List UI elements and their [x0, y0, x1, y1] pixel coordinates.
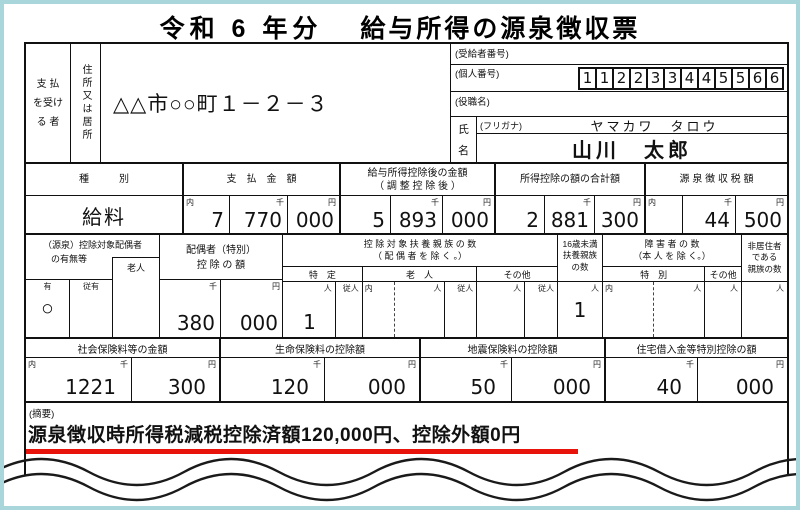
spouse-yes-cell: 有 ○ [26, 279, 69, 337]
title-era: 令和 6 年分 [160, 15, 323, 43]
disability-special-cell: 内人 [603, 282, 704, 337]
nin-marker: 人 [591, 283, 599, 294]
payment-sen: 千770 [229, 196, 287, 234]
junin-marker: 従人 [457, 283, 473, 294]
spouse-header-line1: （源泉）控除対象配偶者 [26, 239, 159, 251]
elderly-sub-cell: 従人 [444, 282, 476, 337]
furigana-row: (フリガナ) ヤマカワ タロウ [477, 117, 787, 134]
payment-en: 円000 [287, 196, 339, 234]
total-deduction-man: 2 [494, 196, 544, 234]
withholding-sen: 千44 [682, 196, 735, 234]
disability-special-label: 特 別 [603, 267, 704, 281]
dashed-divider [394, 282, 395, 337]
dependents-header: 控 除 対 象 扶 養 親 族 の 数 （ 配 偶 者 を 除 く 。） [283, 238, 557, 262]
uchi-marker: 内 [186, 197, 194, 208]
junin-marker: 従人 [538, 283, 554, 294]
spouse-deduction-en: 円000 [220, 279, 283, 337]
dependents-section: （源泉）控除対象配偶者 の有無等 老人 有 ○ 従有 配偶者（特別） 控 除 の… [26, 235, 787, 339]
nonresident-count-cell: 人 [742, 281, 787, 337]
furigana-value: ヤマカワ タロウ [522, 116, 787, 135]
en-marker: 円 [776, 359, 784, 370]
housing-sen: 千40 [604, 358, 697, 401]
income-header-row: 種 別 支 払 金 額 給与所得控除後の金額（ 調 整 控 除 後 ） 所得控除… [26, 164, 787, 196]
disability-values: 内人 人 [603, 281, 741, 337]
sen-marker: 千 [120, 359, 128, 370]
spouse-elderly-cell: 老人 [112, 257, 159, 337]
spouse-subyes-cell: 従有 [69, 279, 112, 337]
yes-marker: 有 [26, 281, 69, 292]
specific-label: 特 定 [283, 267, 362, 281]
nin-marker: 人 [433, 283, 441, 294]
name-label: 氏 名 [451, 117, 477, 162]
spouse-deduction-block: 配偶者（特別） 控 除 の 額 千380 円000 [159, 235, 282, 337]
under16-label: 16歳未満 扶養親族 の数 [558, 239, 602, 273]
spouse-deduction-header: 配偶者（特別） 控 除 の 額 [160, 243, 282, 273]
disability-subheader: 特 別 その他 [603, 266, 741, 281]
en-marker: 円 [483, 197, 491, 208]
social-en: 円300 [131, 358, 219, 401]
payer-label: 支 払 を受け る 者 [26, 44, 71, 162]
after-deduction-sen: 千893 [390, 196, 442, 234]
insurance-header-row: 社会保険料等の金額 生命保険料の控除額 地震保険料の控除額 住宅借入金等特別控除… [26, 339, 787, 358]
after-deduction-man: 5 [339, 196, 390, 234]
personal-number-row: (個人番号) 1 1 2 2 3 3 4 4 5 5 6 6 [451, 65, 787, 91]
en-marker: 円 [593, 359, 601, 370]
dep-other-label: その他 [476, 267, 557, 281]
spouse-presence-block: （源泉）控除対象配偶者 の有無等 老人 有 ○ 従有 [26, 235, 159, 337]
withholding-uchi-cell: 内 [644, 196, 682, 234]
withholding-en: 円500 [735, 196, 787, 234]
payer-label-line: 支 払 [37, 75, 60, 94]
spouse-elderly-label: 老人 [113, 258, 159, 274]
total-deduction-sen: 千881 [544, 196, 594, 234]
address-label: 住所又は居所 [71, 44, 101, 162]
disability-header: 障 害 者 の 数 （本 人 を 除 く。） [603, 238, 741, 262]
after-deduction-header: 給与所得控除後の金額（ 調 整 控 除 後 ） [339, 164, 494, 195]
name-label-char: 名 [458, 142, 469, 158]
disability-other-label: その他 [704, 267, 741, 281]
disability-block: 障 害 者 の 数 （本 人 を 除 く。） 特 別 その他 内人 人 [602, 235, 741, 337]
specific-count-cell: 人1 [283, 282, 335, 337]
name-row: 氏 名 (フリガナ) ヤマカワ タロウ 山川 太郎 [451, 117, 787, 162]
dependents-values: 人1 従人 内人 従人 人 従人 [283, 281, 557, 337]
nonresident-block: 非居住者 である 親族の数 人 [741, 235, 787, 337]
sen-marker: 千 [431, 197, 439, 208]
en-marker: 円 [328, 197, 336, 208]
identity-section: 支 払 を受け る 者 住所又は居所 △△市○○町１－２－３ (受給者番号) (… [26, 44, 787, 164]
personal-number-label: (個人番号) [451, 66, 521, 90]
sen-marker: 千 [724, 197, 732, 208]
address-value: △△市○○町１－２－３ [101, 44, 450, 162]
summary-label: (摘要) [26, 403, 787, 420]
payment-header: 支 払 金 額 [182, 164, 339, 195]
after-deduction-en: 円000 [442, 196, 494, 234]
nonresident-label: 非居住者 である 親族の数 [742, 241, 787, 275]
income-section: 種 別 支 払 金 額 給与所得控除後の金額（ 調 整 控 除 後 ） 所得控除… [26, 164, 787, 235]
personal-number-digits: 1 1 2 2 3 3 4 4 5 5 6 6 [580, 67, 787, 90]
en-marker: 円 [208, 359, 216, 370]
position-label: (役職名) [451, 92, 787, 117]
uchi-marker: 内 [28, 359, 36, 370]
life-sen: 千120 [219, 358, 324, 401]
other-count-cell: 人 [476, 282, 524, 337]
payer-label-line: る 者 [37, 113, 60, 132]
en-marker: 円 [272, 281, 280, 292]
housing-deduction-header: 住宅借入金等特別控除の額 [604, 339, 787, 357]
nin-marker: 人 [324, 283, 332, 294]
disability-other-cell: 人 [704, 282, 741, 337]
sen-marker: 千 [276, 197, 284, 208]
dashed-divider [653, 282, 654, 337]
subyes-marker: 従有 [70, 281, 112, 292]
page-title: 令和 6 年分給与所得の源泉徴収票 [4, 9, 796, 45]
personal-number-digit: 6 [765, 67, 784, 90]
en-marker: 円 [776, 197, 784, 208]
sen-marker: 千 [313, 359, 321, 370]
dep-elderly-label: 老 人 [362, 267, 477, 281]
en-marker: 円 [633, 197, 641, 208]
spouse-deduction-sen: 千380 [160, 279, 220, 337]
dependents-count-block: 控 除 対 象 扶 養 親 族 の 数 （ 配 偶 者 を 除 く 。） 特 定… [282, 235, 557, 337]
payment-man: 内7 [182, 196, 229, 234]
recipient-number-label: (受給者番号) [451, 44, 787, 65]
sen-marker: 千 [583, 197, 591, 208]
nin-marker: 人 [513, 283, 521, 294]
form-table: 支 払 を受け る 者 住所又は居所 △△市○○町１－２－３ (受給者番号) (… [24, 42, 789, 475]
total-deduction-header: 所得控除の額の合計額 [494, 164, 644, 195]
other-sub-cell: 従人 [524, 282, 557, 337]
income-value-row: 給料 内7 千770 円000 5 千893 円000 2 千881 円300 … [26, 196, 787, 234]
name-label-char: 氏 [458, 121, 469, 137]
withholding-header: 源 泉 徴 収 税 額 [644, 164, 787, 195]
nin-marker: 人 [730, 283, 738, 294]
type-value: 給料 [26, 196, 182, 234]
under16-count-cell: 人 1 [558, 281, 602, 337]
earthquake-en: 円000 [511, 358, 604, 401]
social-sen: 内千1221 [26, 358, 131, 401]
spouse-header-line2: の有無等 [26, 253, 112, 265]
earthquake-sen: 千50 [419, 358, 511, 401]
payer-label-line: を受け [33, 94, 63, 113]
withholding-slip-page: 令和 6 年分給与所得の源泉徴収票 支 払 を受け る 者 住所又は居所 △△市… [0, 0, 800, 510]
sen-marker: 千 [686, 359, 694, 370]
title-name: 給与所得の源泉徴収票 [360, 15, 640, 43]
insurance-section: 社会保険料等の金額 生命保険料の控除額 地震保険料の控除額 住宅借入金等特別控除… [26, 339, 787, 403]
specific-sub-cell: 従人 [335, 282, 362, 337]
en-marker: 円 [408, 359, 416, 370]
sen-marker: 千 [209, 281, 217, 292]
name-value: 山川 太郎 [477, 134, 787, 163]
dependents-subheader: 特 定 老 人 その他 [283, 266, 557, 281]
name-body: (フリガナ) ヤマカワ タロウ 山川 太郎 [477, 117, 787, 162]
uchi-marker: 内 [648, 197, 656, 208]
junin-marker: 従人 [343, 283, 359, 294]
summary-note: 源泉徴収時所得税減税控除済額120,000円、控除外額0円 [28, 420, 521, 447]
life-insurance-header: 生命保険料の控除額 [219, 339, 419, 357]
insurance-value-row: 内千1221 円300 千120 円000 千50 円000 千40 円000 [26, 358, 787, 401]
uchi-marker: 内 [605, 283, 613, 294]
type-header: 種 別 [26, 164, 182, 195]
furigana-label: (フリガナ) [477, 119, 522, 132]
nin-marker: 人 [693, 283, 701, 294]
sen-marker: 千 [500, 359, 508, 370]
total-deduction-en: 円300 [594, 196, 644, 234]
elderly-count-cell: 内人 [362, 282, 445, 337]
under16-block: 16歳未満 扶養親族 の数 人 1 [557, 235, 602, 337]
social-insurance-header: 社会保険料等の金額 [26, 339, 219, 357]
life-en: 円000 [324, 358, 419, 401]
nin-marker: 人 [776, 283, 784, 294]
torn-edge-waves [4, 452, 800, 510]
earthquake-insurance-header: 地震保険料の控除額 [419, 339, 604, 357]
recipient-block: (受給者番号) (個人番号) 1 1 2 2 3 3 4 4 5 5 6 [450, 44, 787, 162]
housing-en: 円000 [697, 358, 787, 401]
uchi-marker: 内 [365, 283, 373, 294]
